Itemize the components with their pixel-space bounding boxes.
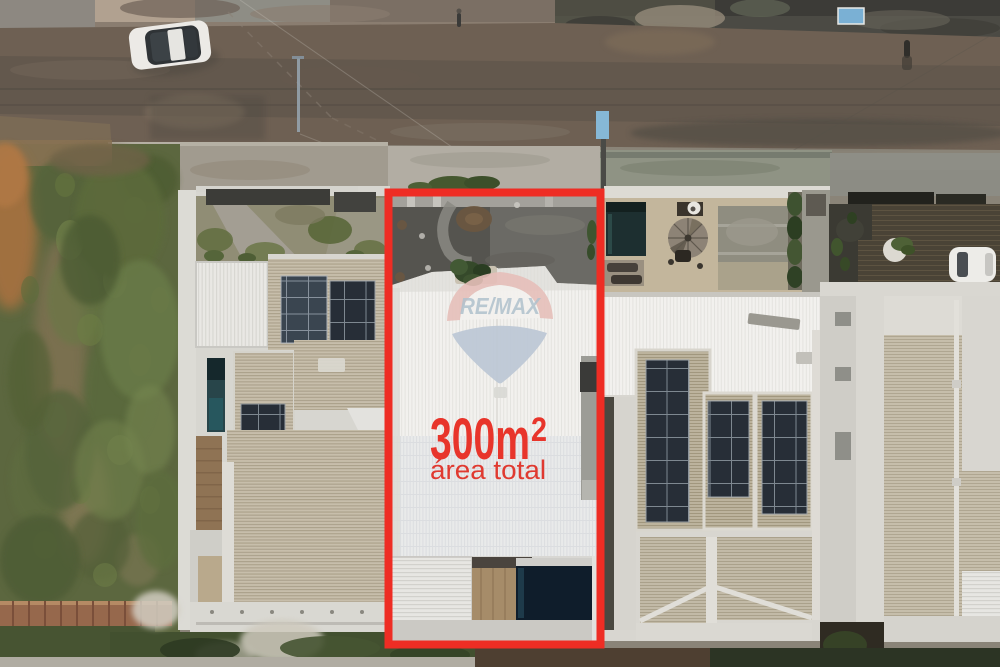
svg-text:RE/MAX: RE/MAX: [460, 293, 541, 319]
svg-text:2: 2: [531, 411, 547, 449]
svg-text:área total: área total: [430, 455, 546, 485]
